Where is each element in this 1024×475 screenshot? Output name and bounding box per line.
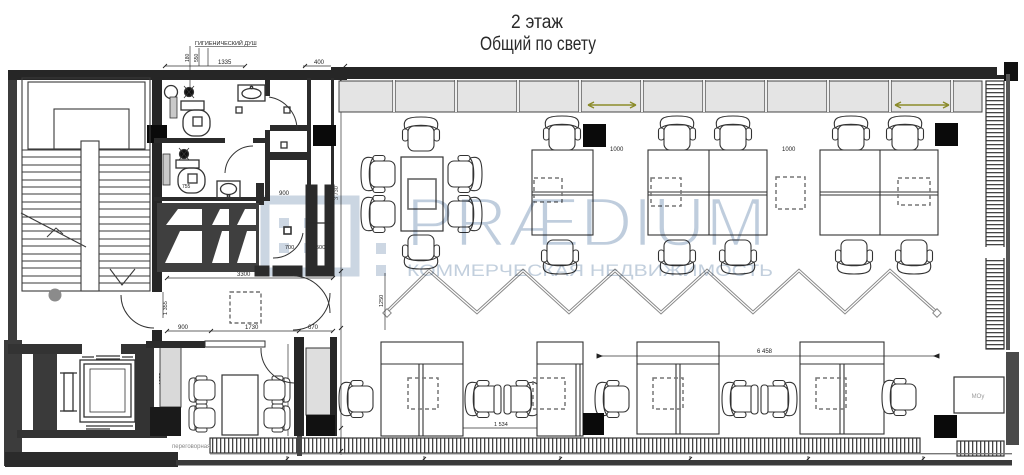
svg-text:1 534: 1 534: [494, 422, 508, 428]
svg-text:1 355: 1 355: [163, 301, 169, 315]
svg-text:6 458: 6 458: [757, 349, 773, 355]
svg-text:3300: 3300: [237, 272, 251, 278]
svg-text:2 этаж: 2 этаж: [511, 12, 563, 33]
svg-text:1335: 1335: [218, 60, 232, 66]
svg-text:1000: 1000: [782, 147, 796, 153]
svg-text:1250: 1250: [379, 295, 385, 307]
svg-text:755: 755: [182, 184, 191, 190]
svg-text:180: 180: [185, 53, 191, 62]
svg-text:550: 550: [194, 53, 200, 62]
svg-text:1000: 1000: [610, 147, 624, 153]
svg-text:КОММЕРЧЕСКАЯ НЕДВИЖИМОСТЬ: КОММЕРЧЕСКАЯ НЕДВИЖИМОСТЬ: [407, 262, 773, 280]
svg-text:Общий по свету: Общий по свету: [480, 34, 596, 55]
svg-text:переговорная: переговорная: [172, 444, 210, 450]
svg-text:PRÆDIUM: PRÆDIUM: [406, 183, 766, 261]
svg-text:1730: 1730: [245, 325, 259, 331]
svg-text:МОу: МОу: [972, 394, 985, 400]
svg-text:ГИГИЕНИЧЕСКИЙ ДУШ: ГИГИЕНИЧЕСКИЙ ДУШ: [195, 39, 257, 47]
svg-text:900: 900: [178, 325, 189, 331]
svg-text:400: 400: [314, 60, 325, 66]
